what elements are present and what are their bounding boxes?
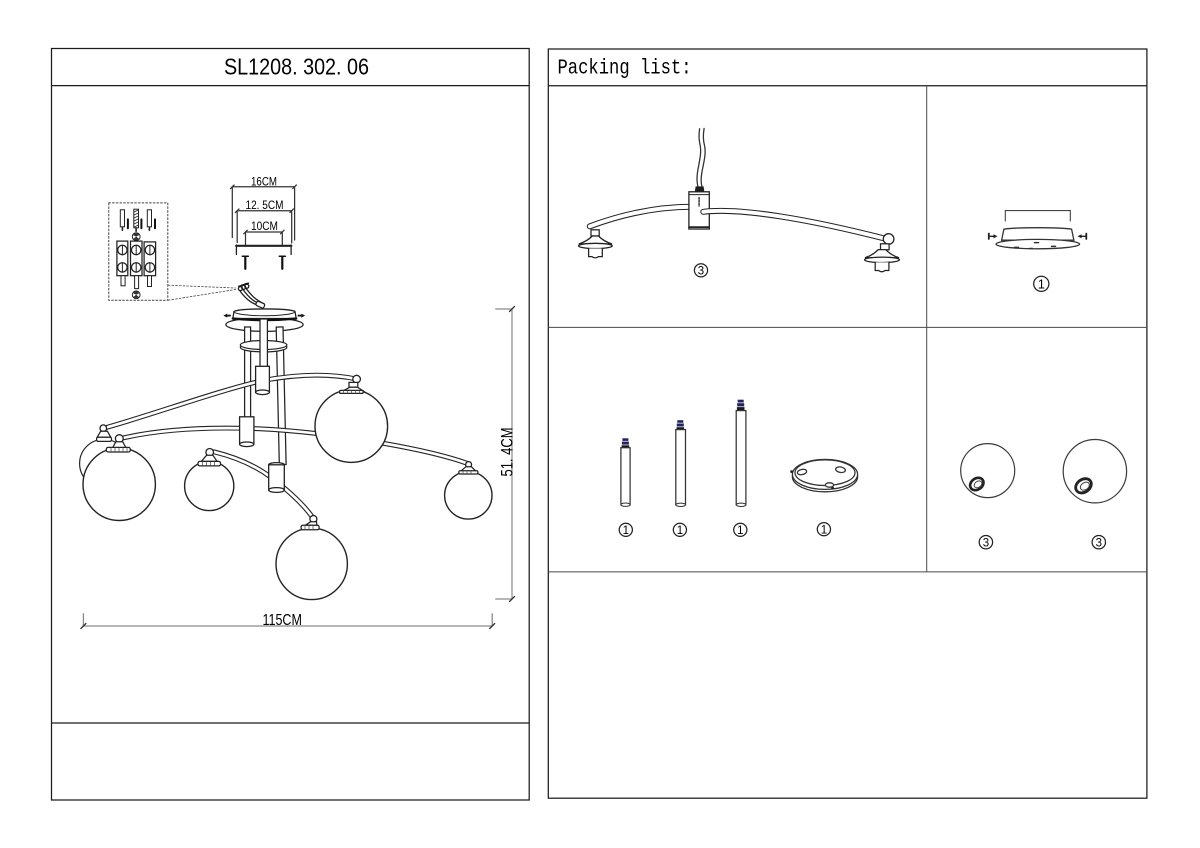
svg-text:SL1208. 302. 06: SL1208. 302. 06 (224, 54, 369, 80)
svg-text:1: 1 (677, 525, 683, 537)
svg-text:3: 3 (698, 266, 704, 278)
svg-text:1: 1 (821, 525, 827, 537)
svg-text:3: 3 (1096, 538, 1102, 550)
svg-text:115CM: 115CM (262, 612, 302, 629)
svg-text:1: 1 (623, 525, 629, 537)
svg-text:10CM: 10CM (251, 221, 278, 233)
svg-text:51. 4CM: 51. 4CM (498, 428, 517, 477)
svg-text:Packing list:: Packing list: (558, 58, 692, 81)
svg-text:1: 1 (1038, 277, 1045, 291)
svg-text:1: 1 (737, 525, 743, 537)
svg-text:3: 3 (983, 538, 989, 550)
